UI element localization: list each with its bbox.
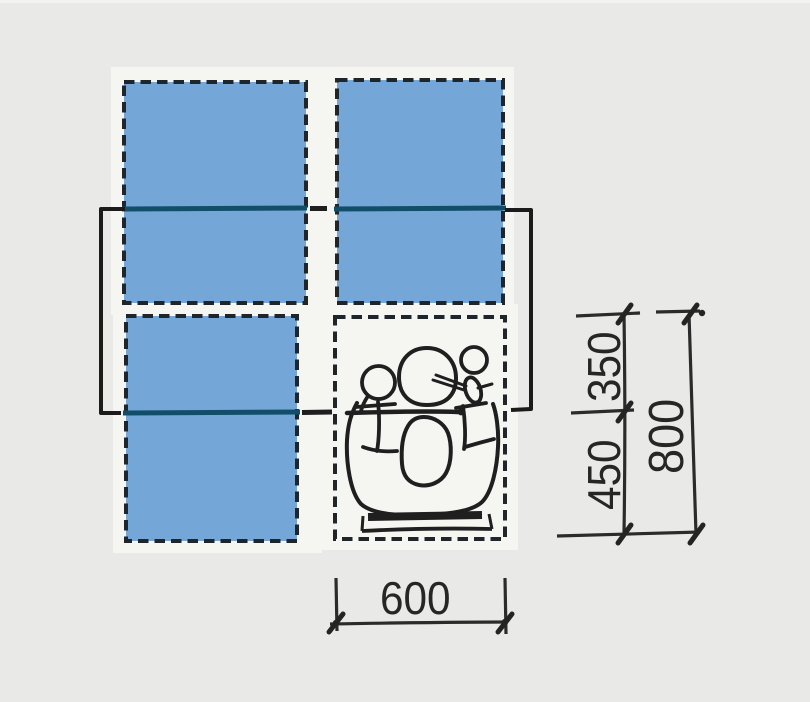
svg-text:800: 800	[638, 399, 693, 474]
svg-text:600: 600	[380, 573, 451, 624]
svg-text:350: 350	[579, 331, 630, 402]
svg-text:450: 450	[579, 439, 630, 510]
